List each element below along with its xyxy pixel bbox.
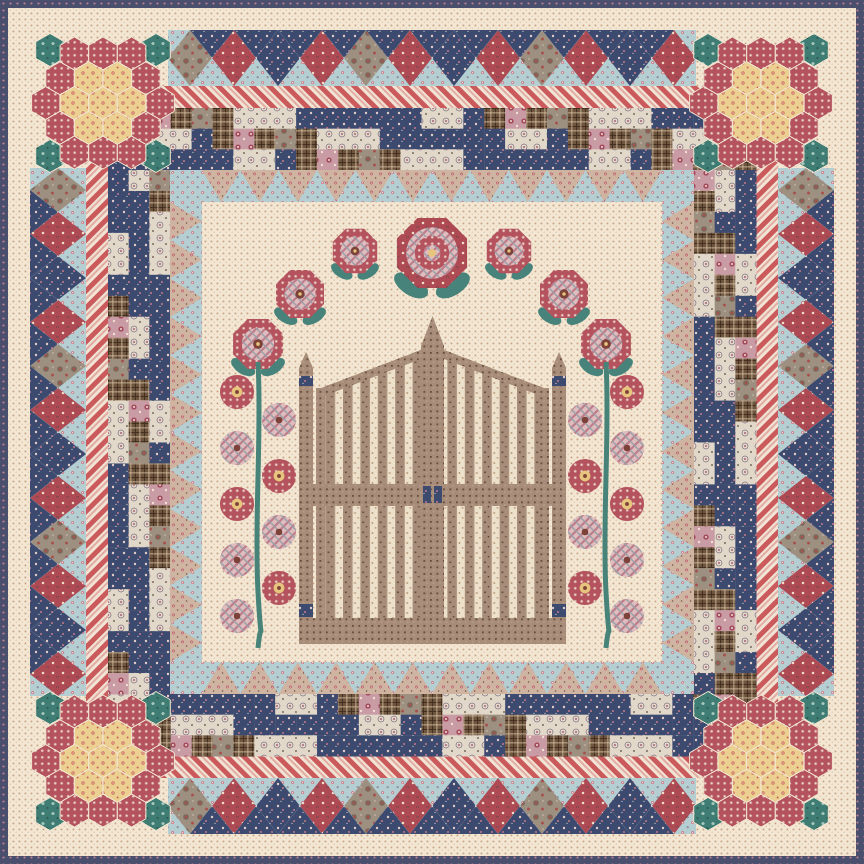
gate-post (299, 368, 313, 644)
corner-rosette-bottom-right (690, 692, 833, 831)
checker-patch (171, 149, 192, 170)
checker-patch (401, 129, 422, 150)
checker-patch (129, 233, 150, 254)
checker-patch (129, 526, 150, 547)
checker-patch (715, 233, 736, 254)
checker-patch (338, 149, 359, 170)
checker-patch (526, 735, 547, 756)
checker-patch (442, 149, 463, 170)
checker-patch (129, 191, 150, 212)
gate-center-post (421, 316, 444, 644)
checker-patch (149, 673, 170, 694)
checker-patch (108, 170, 129, 191)
checker-patch (108, 568, 129, 589)
checker-patch (380, 108, 401, 129)
checker-patch (442, 715, 463, 736)
checker-patch (275, 129, 296, 150)
checker-patch (129, 610, 150, 631)
checker-patch (233, 108, 254, 129)
checker-patch (651, 735, 672, 756)
checker-patch (108, 254, 129, 275)
checker-patch (484, 715, 505, 736)
checker-patch (610, 129, 631, 150)
checker-patch (735, 275, 756, 296)
checker-patch (108, 233, 129, 254)
checker-patch (568, 129, 589, 150)
checker-patch (735, 610, 756, 631)
checker-patch (505, 108, 526, 129)
bloom-dot (235, 390, 239, 394)
gate-hinge-foot (299, 604, 313, 617)
checker-patch (715, 296, 736, 317)
checker-patch (694, 652, 715, 673)
checker-patch (422, 129, 443, 150)
checker-patch (735, 338, 756, 359)
checker-patch (610, 694, 631, 715)
checker-patch (715, 359, 736, 380)
checker-patch (317, 694, 338, 715)
border-stripe-left (86, 108, 108, 756)
bloom-dot (625, 502, 629, 506)
checker-patch (149, 233, 170, 254)
rose-center (604, 342, 608, 346)
checker-patch (463, 108, 484, 129)
checker-patch (149, 547, 170, 568)
checker-patch (526, 694, 547, 715)
checker-patch (149, 652, 170, 673)
checker-patch (233, 735, 254, 756)
checker-patch (651, 108, 672, 129)
corner-rosette-top-right (690, 34, 833, 173)
checker-patch (715, 568, 736, 589)
checker-patch (694, 568, 715, 589)
checker-patch (254, 129, 275, 150)
checker-patch (526, 715, 547, 736)
checker-patch (192, 108, 213, 129)
checker-patch (296, 694, 317, 715)
checker-patch (694, 631, 715, 652)
gate-latch (434, 486, 442, 503)
checker-patch (149, 212, 170, 233)
checker-patch (631, 149, 652, 170)
checker-patch (108, 631, 129, 652)
checker-patch (715, 547, 736, 568)
corner-rosette-top-left (32, 34, 175, 173)
checker-patch (694, 422, 715, 443)
checker-patch (672, 129, 693, 150)
checker-patch (213, 715, 234, 736)
checker-patch (694, 359, 715, 380)
checker-patch (108, 589, 129, 610)
checker-patch (631, 129, 652, 150)
checker-patch (129, 380, 150, 401)
bloom-center (234, 613, 240, 619)
checker-patch (149, 170, 170, 191)
checker-patch (129, 401, 150, 422)
checker-patch (422, 108, 443, 129)
checker-patch (715, 212, 736, 233)
checker-patch (108, 484, 129, 505)
checker-patch (568, 694, 589, 715)
checker-patch (442, 129, 463, 150)
checker-patch (568, 735, 589, 756)
checker-patch (505, 129, 526, 150)
checker-patch (651, 694, 672, 715)
checker-patch (672, 694, 693, 715)
checker-patch (484, 694, 505, 715)
checker-patch (108, 380, 129, 401)
checker-patch (129, 212, 150, 233)
gate-stile-right (539, 388, 549, 644)
checker-patch (547, 149, 568, 170)
checker-patch (715, 401, 736, 422)
checker-patch (171, 694, 192, 715)
checker-patch (463, 735, 484, 756)
checker-patch (296, 735, 317, 756)
checker-patch (129, 296, 150, 317)
border-diamond-right (778, 168, 834, 696)
checker-patch (213, 108, 234, 129)
bloom-center (582, 417, 588, 423)
checker-patch (651, 149, 672, 170)
checker-patch (275, 149, 296, 170)
checker-patch (694, 380, 715, 401)
checker-patch (149, 401, 170, 422)
checker-patch (108, 275, 129, 296)
checker-patch (694, 484, 715, 505)
checker-patch (213, 129, 234, 150)
checker-patch (610, 149, 631, 170)
checker-patch (108, 317, 129, 338)
checker-patch (631, 735, 652, 756)
checker-patch (735, 652, 756, 673)
checker-patch (694, 401, 715, 422)
checker-patch (192, 715, 213, 736)
checker-patch (254, 108, 275, 129)
bloom-dot (235, 502, 239, 506)
checker-patch (149, 463, 170, 484)
checker-patch (735, 401, 756, 422)
checker-patch (380, 129, 401, 150)
checker-patch (380, 694, 401, 715)
checker-patch (233, 149, 254, 170)
checker-patch (547, 735, 568, 756)
checker-patch (463, 715, 484, 736)
gate-post-navy-band (552, 376, 566, 386)
checker-patch (568, 715, 589, 736)
checker-patch (149, 610, 170, 631)
checker-patch (108, 463, 129, 484)
checker-patch (149, 380, 170, 401)
checker-patch (192, 694, 213, 715)
checker-patch (735, 212, 756, 233)
checker-patch (359, 149, 380, 170)
checker-patch (275, 108, 296, 129)
checker-patch (171, 715, 192, 736)
checker-patch (380, 149, 401, 170)
checker-patch (129, 442, 150, 463)
checker-patch (296, 129, 317, 150)
checker-patch (694, 589, 715, 610)
checker-patch (275, 735, 296, 756)
checker-patch (505, 715, 526, 736)
checker-patch (401, 715, 422, 736)
checker-patch (296, 108, 317, 129)
checker-patch (715, 589, 736, 610)
checker-patch (338, 108, 359, 129)
checker-patch (192, 735, 213, 756)
checker-patch (735, 589, 756, 610)
checker-patch (694, 191, 715, 212)
checker-patch (129, 317, 150, 338)
binding-top (0, 0, 864, 8)
checker-patch (254, 735, 275, 756)
border-checkerboard-left (108, 170, 171, 695)
checker-patch (484, 108, 505, 129)
checker-patch (463, 129, 484, 150)
checker-patch (254, 694, 275, 715)
border-checkerboard-bottom (108, 694, 757, 757)
rose-center (428, 249, 436, 257)
checker-patch (526, 108, 547, 129)
checker-patch (463, 694, 484, 715)
checker-patch (422, 715, 443, 736)
checker-patch (129, 254, 150, 275)
checker-patch (631, 715, 652, 736)
checker-patch (547, 715, 568, 736)
border-stripe-top (108, 86, 756, 108)
checker-patch (129, 275, 150, 296)
checker-patch (735, 484, 756, 505)
checker-patch (149, 589, 170, 610)
checker-patch (589, 129, 610, 150)
checker-patch (213, 149, 234, 170)
gate-stile-left (316, 388, 326, 644)
checker-patch (233, 129, 254, 150)
checker-patch (296, 715, 317, 736)
checker-patch (715, 275, 736, 296)
checker-patch (149, 526, 170, 547)
gate-hinge-foot (552, 604, 566, 617)
bloom-center (276, 417, 282, 423)
checker-patch (547, 129, 568, 150)
checker-patch (233, 694, 254, 715)
checker-patch (359, 129, 380, 150)
checker-patch (735, 359, 756, 380)
checker-patch (442, 108, 463, 129)
checker-patch (735, 254, 756, 275)
checker-patch (694, 233, 715, 254)
bloom-center (234, 557, 240, 563)
checker-patch (589, 108, 610, 129)
checker-patch (317, 149, 338, 170)
checker-patch (547, 694, 568, 715)
checker-patch (735, 526, 756, 547)
checker-patch (129, 463, 150, 484)
checker-patch (694, 317, 715, 338)
checker-patch (129, 568, 150, 589)
binding-bottom (0, 856, 864, 864)
checker-patch (694, 526, 715, 547)
checker-patch (694, 275, 715, 296)
checker-patch (317, 715, 338, 736)
checker-patch (171, 129, 192, 150)
checker-patch (149, 191, 170, 212)
bloom-dot (583, 586, 587, 590)
checker-patch (735, 233, 756, 254)
corner-rosette-bottom-left (32, 692, 175, 831)
border-stripe-bottom (108, 756, 756, 778)
checker-patch (401, 694, 422, 715)
checker-patch (108, 610, 129, 631)
checker-patch (735, 191, 756, 212)
checker-patch (149, 442, 170, 463)
checker-patch (715, 442, 736, 463)
checker-patch (715, 380, 736, 401)
checker-patch (735, 442, 756, 463)
checker-patch (715, 338, 736, 359)
checker-patch (589, 735, 610, 756)
checker-patch (149, 275, 170, 296)
checker-patch (149, 631, 170, 652)
gate-post (552, 368, 566, 644)
checker-patch (651, 129, 672, 150)
checker-patch (589, 694, 610, 715)
checker-patch (149, 484, 170, 505)
checker-patch (694, 254, 715, 275)
checker-patch (715, 254, 736, 275)
checker-patch (735, 463, 756, 484)
checker-patch (192, 149, 213, 170)
checker-patch (610, 108, 631, 129)
gate-mid-rail (299, 484, 566, 506)
checker-patch (735, 170, 756, 191)
checker-patch (422, 735, 443, 756)
checker-patch (715, 484, 736, 505)
checker-patch (715, 505, 736, 526)
checker-patch (108, 505, 129, 526)
checker-patch (735, 547, 756, 568)
checker-patch (108, 673, 129, 694)
checker-patch (735, 505, 756, 526)
checker-patch (338, 129, 359, 150)
border-stripe-right (756, 108, 778, 756)
checker-patch (484, 149, 505, 170)
checker-patch (108, 422, 129, 443)
checker-patch (149, 254, 170, 275)
rose-center (256, 342, 260, 346)
bloom-dot (625, 390, 629, 394)
bloom-center (624, 445, 630, 451)
checker-patch (735, 673, 756, 694)
checker-patch (422, 149, 443, 170)
checker-patch (715, 610, 736, 631)
checker-patch (254, 149, 275, 170)
checker-patch (610, 735, 631, 756)
checker-patch (735, 631, 756, 652)
checker-patch (108, 296, 129, 317)
checker-patch (694, 547, 715, 568)
gate-post-navy-band (299, 376, 313, 386)
checker-patch (233, 715, 254, 736)
checker-patch (129, 673, 150, 694)
checker-patch (317, 129, 338, 150)
checker-patch (380, 735, 401, 756)
checker-patch (589, 715, 610, 736)
checker-patch (129, 359, 150, 380)
border-checkerboard-top (108, 108, 757, 171)
checker-patch (108, 442, 129, 463)
checker-patch (338, 735, 359, 756)
checker-patch (317, 108, 338, 129)
checker-patch (108, 652, 129, 673)
checker-patch (108, 338, 129, 359)
checker-patch (631, 108, 652, 129)
checker-patch (694, 610, 715, 631)
checker-patch (108, 191, 129, 212)
checker-patch (108, 359, 129, 380)
checker-patch (108, 212, 129, 233)
checker-patch (213, 694, 234, 715)
checker-patch (442, 735, 463, 756)
checker-patch (442, 694, 463, 715)
checker-patch (715, 526, 736, 547)
checker-patch (715, 422, 736, 443)
quilt-svg (0, 0, 864, 864)
checker-patch (672, 149, 693, 170)
checker-patch (108, 547, 129, 568)
checker-patch (129, 547, 150, 568)
checker-patch (631, 694, 652, 715)
checker-patch (505, 735, 526, 756)
checker-patch (735, 296, 756, 317)
checker-patch (359, 108, 380, 129)
checker-patch (484, 735, 505, 756)
checker-patch (568, 149, 589, 170)
checker-patch (129, 484, 150, 505)
checker-patch (484, 129, 505, 150)
checker-patch (422, 694, 443, 715)
rose-center (298, 292, 302, 296)
bloom-dot (277, 474, 281, 478)
checker-patch (254, 715, 275, 736)
gate-bottom-rail (299, 618, 566, 644)
bloom-center (624, 557, 630, 563)
checker-patch (401, 149, 422, 170)
bloom-center (624, 613, 630, 619)
checker-patch (589, 149, 610, 170)
checker-patch (694, 170, 715, 191)
gate-latch (423, 486, 431, 503)
checker-patch (715, 631, 736, 652)
checker-patch (715, 463, 736, 484)
checker-patch (526, 149, 547, 170)
checker-patch (338, 694, 359, 715)
checker-patch (651, 715, 672, 736)
checker-patch (715, 673, 736, 694)
checker-patch (149, 422, 170, 443)
checker-patch (735, 568, 756, 589)
checker-patch (547, 108, 568, 129)
binding-right (856, 0, 864, 864)
checker-patch (715, 317, 736, 338)
checker-patch (149, 505, 170, 526)
bloom-center (234, 445, 240, 451)
bloom-dot (277, 586, 281, 590)
checker-patch (359, 694, 380, 715)
checker-patch (735, 380, 756, 401)
checker-patch (129, 589, 150, 610)
